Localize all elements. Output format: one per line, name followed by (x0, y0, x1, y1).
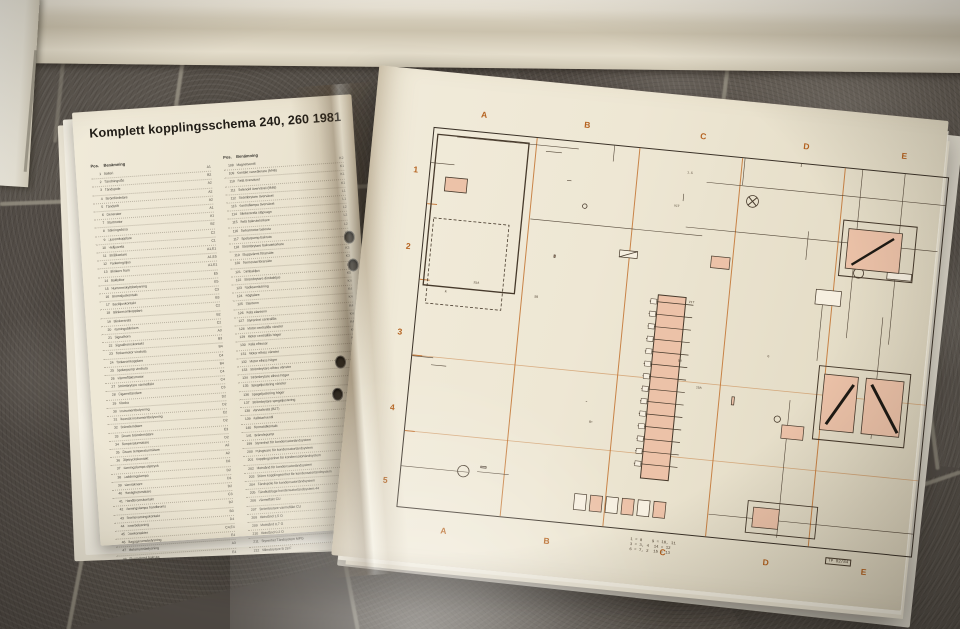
component-box (496, 439, 497, 450)
wire (707, 182, 948, 209)
legend-pos: 136 (239, 391, 249, 399)
legend-ref: K4 (341, 294, 353, 302)
component-box (731, 397, 734, 405)
grid-letter: C (700, 131, 707, 142)
component-box (646, 348, 652, 354)
legend-ref: B4 (211, 344, 223, 352)
wiring-diagram-page: SB5025A2.549aMR16A2.525ASBM49a15A2.5JGND… (331, 65, 948, 610)
legend-pos: 127 (234, 318, 244, 326)
legend-pos: 2 (91, 179, 101, 187)
legend-ref: B3 (221, 507, 233, 515)
legend-ref: B3 (210, 336, 222, 344)
wire (500, 138, 537, 516)
legend-ref: E4 (224, 548, 236, 556)
legend-pos: 26 (104, 376, 114, 384)
wire-label: G (767, 354, 769, 358)
component-box (401, 351, 407, 352)
wire (546, 151, 562, 153)
photo-scene: Komplett kopplingsschema 240, 260 1981 P… (0, 0, 960, 629)
legend-pos: 204 (245, 481, 255, 489)
legend-pos: 6 (94, 212, 104, 220)
legend-pos: 112 (226, 195, 236, 203)
legend-pos: 30 (107, 408, 117, 416)
legend-pos: 21 (102, 335, 112, 343)
legend-pos: 141 (242, 432, 252, 440)
wire (613, 128, 627, 162)
legend-pos: 133 (237, 367, 247, 375)
legend-ref: K4 (341, 302, 353, 310)
component-box (637, 500, 650, 517)
legend-pos: 5 (93, 204, 103, 212)
legend-ref: A1,E5 (205, 254, 217, 262)
legend-ref: A2 (217, 442, 229, 450)
legend-pos: 40 (112, 490, 122, 498)
legend-ref: L2 (335, 212, 347, 220)
legend-pos: 32 (108, 425, 118, 433)
grid-letter: D (803, 141, 810, 152)
legend-pos: 201 (243, 457, 253, 465)
wire (400, 215, 404, 227)
legend-ref: C4 (212, 368, 224, 376)
wire (420, 279, 430, 280)
legend-pos: 119 (230, 252, 240, 260)
legend-pos: 12 (97, 261, 107, 269)
wire (808, 168, 845, 546)
grid-letter: B (584, 120, 591, 131)
component-box (444, 177, 467, 193)
legend-pos: 27 (105, 384, 115, 392)
legend-ref: A1 (199, 164, 211, 172)
component-box (648, 324, 654, 330)
component-box (640, 411, 646, 417)
legend-ref: A3 (224, 540, 236, 548)
legend-pos: 129 (235, 334, 245, 342)
wire-label: R (445, 289, 447, 293)
legend-ref: A1,E1 (205, 262, 217, 270)
component-box (635, 461, 641, 467)
wire-label: 58 (678, 358, 682, 362)
component-box (554, 255, 555, 257)
legend-ref: B2 (199, 172, 211, 180)
legend-pos: 22 (102, 343, 112, 351)
legend-pos: 13 (97, 269, 107, 277)
page-title: Komplett kopplingsschema 240, 260 1981 (89, 110, 345, 141)
legend-pos: 111 (225, 187, 235, 195)
legend-pos: 108 (224, 162, 234, 170)
wire (775, 128, 783, 139)
legend-pos: 210 (248, 530, 258, 538)
component-box (573, 494, 586, 511)
wire-label: VIT (674, 204, 680, 209)
legend-ref: L2 (335, 204, 347, 212)
legend-pos: 47 (116, 547, 126, 555)
wire-label: B+ (589, 420, 593, 424)
wire (530, 219, 702, 236)
legend-pos: 8 (95, 228, 105, 236)
legend-pos: 20 (101, 326, 111, 334)
grid-letter: E (901, 151, 908, 162)
grid-letter: D (762, 557, 769, 568)
legend-pos: 123 (232, 285, 242, 293)
legend-pos: 132 (237, 359, 247, 367)
manual-left-page: Komplett kopplingsschema 240, 260 1981 P… (72, 94, 380, 546)
legend-pos: 122 (231, 277, 241, 285)
wire (397, 138, 454, 164)
legend-ref: L2 (336, 220, 348, 228)
legend-ref: D2 (219, 467, 231, 475)
legend-ref: K4 (342, 310, 354, 318)
component-box (589, 495, 602, 512)
legend-pos: 37 (110, 466, 120, 474)
legend-pos: 18 (100, 310, 110, 318)
grid-letter: A (440, 525, 447, 536)
legend-ref: A2 (218, 450, 230, 458)
legend-ref: E4 (223, 532, 235, 540)
legend-pos: 126 (233, 309, 243, 317)
legend-pos: 23 (103, 351, 113, 359)
legend-ref: K4 (340, 286, 352, 294)
legend-pos: 42 (113, 507, 123, 515)
grid-number: 5 (383, 474, 389, 484)
legend-ref: K3 (337, 245, 349, 253)
binder-hole (343, 230, 355, 244)
legend-pos: 11 (96, 253, 106, 261)
legend-pos: 207 (246, 506, 256, 514)
legend-pos: 109 (224, 170, 234, 178)
component-box (643, 373, 649, 379)
component-box (669, 476, 670, 485)
wire (603, 148, 640, 526)
legend-ref: C3 (220, 491, 232, 499)
legend-pos: 4 (93, 196, 103, 204)
component-box (397, 298, 399, 308)
legend-ref: C3 (213, 385, 225, 393)
legend-ref: E5 (206, 270, 218, 278)
legend-ref: K1 (332, 171, 344, 179)
legend-pos: 206 (246, 498, 256, 506)
wire-label: 15A (696, 385, 702, 390)
legend-pos: 116 (228, 228, 238, 236)
component-box (710, 256, 730, 269)
legend-ref: C2 (215, 409, 227, 417)
legend-ref: C1 (204, 237, 216, 245)
legend-ref: A2 (200, 180, 212, 188)
legend-pos: 110 (225, 179, 235, 187)
component-box (642, 386, 648, 392)
legend-ref: A3 (210, 327, 222, 335)
legend-pos: 211 (249, 539, 259, 547)
component-box (605, 497, 618, 514)
wire-label: 1.5 (687, 170, 693, 175)
pin-code-legend: 1 = 8 9 = 10, 11 3 = 3, 4 14 = 12 6 = 7,… (629, 538, 676, 558)
legend-pos: 28 (106, 392, 116, 400)
legend-ref: B3 (207, 295, 219, 303)
legend-pos: 44 (114, 523, 124, 531)
legend-ref: D2 (221, 499, 233, 507)
legend-ref: K4 (339, 278, 351, 286)
pos-header: Pos. (223, 154, 236, 160)
legend-pos: 124 (232, 293, 242, 301)
legend-pos: 31 (107, 417, 117, 425)
legend-pos: 209 (247, 522, 257, 530)
component-box (651, 299, 657, 305)
legend-ref: C2 (208, 303, 220, 311)
wire (806, 231, 809, 259)
legend-ref: E3 (216, 426, 228, 434)
component-box (423, 134, 529, 293)
legend-ref: D1 (219, 475, 231, 483)
grid-number: 1 (413, 164, 419, 174)
legend-pos: 125 (233, 301, 243, 309)
component-box (621, 498, 634, 515)
wire-label: 25A (473, 280, 479, 285)
legend-pos: 205 (245, 490, 255, 498)
legend-ref: K2 (331, 155, 343, 163)
legend-ref: D4 (222, 516, 234, 524)
legend-pos: 7 (94, 220, 104, 228)
wire (405, 430, 415, 431)
legend-pos: 117 (228, 236, 238, 244)
legend-ref: C4 (211, 352, 223, 360)
wiring-schematic: SB5025A2.549aMR16A2.525ASBM49a15A2.5JGND… (396, 127, 949, 558)
name-header: Benämning (103, 161, 125, 167)
legend-pos: 41 (113, 498, 123, 506)
legend-pos: 17 (100, 302, 110, 310)
legend-pos: 139 (240, 416, 250, 424)
legend-ref: A1 (201, 205, 213, 213)
legend-pos: 9 (95, 236, 105, 244)
legend-ref: K1 (332, 163, 344, 171)
legend-pos: 121 (231, 269, 241, 277)
binder-hole (347, 258, 359, 272)
legend-pos: 10 (96, 245, 106, 253)
name-header: Benämning (236, 153, 258, 159)
legend-pos: 134 (238, 375, 248, 383)
wire (397, 170, 403, 191)
legend-ref: C2 (203, 229, 215, 237)
grid-number: 2 (405, 240, 411, 250)
legend-ref: D2 (220, 483, 232, 491)
legend-pos: 38 (111, 474, 121, 482)
legend-pos: 203 (244, 473, 254, 481)
legend-ref: B2 (202, 221, 214, 229)
legend-pos: 208 (247, 514, 257, 522)
legend-pos: 36 (110, 457, 120, 465)
component-box (636, 448, 642, 454)
legend-pos: 34 (109, 441, 119, 449)
legend-ref: D2 (215, 417, 227, 425)
component-box (425, 218, 509, 311)
legend-pos: 1 (91, 171, 101, 179)
legend-pos: 43 (114, 515, 124, 523)
legend-pos: 45 (115, 531, 125, 539)
motor-symbol (774, 416, 781, 423)
schematic-drawing: SB5025A2.549aMR16A2.525ASBM49a15A2.5JGND… (397, 128, 948, 557)
pos-header: Pos. (90, 163, 103, 169)
legend-pos: 15 (98, 286, 108, 294)
grid-letter: A (481, 109, 488, 120)
legend-pos: 115 (227, 219, 237, 227)
wall-baseboard (0, 0, 960, 73)
legend-pos: 14 (98, 277, 108, 285)
motor-symbol (582, 204, 587, 209)
legend-pos: 135 (238, 383, 248, 391)
legend-pos: 46 (115, 539, 125, 547)
legend-pos: 212 (249, 547, 259, 555)
component-box (781, 425, 804, 441)
legend-pos: 202 (244, 465, 254, 473)
legend-ref: D2 (214, 401, 226, 409)
component-box (649, 311, 655, 317)
grid-number: 3 (397, 326, 403, 336)
component-box (481, 466, 486, 468)
component-box (653, 501, 666, 518)
wire (742, 158, 745, 185)
legend-pos: 137 (239, 400, 249, 408)
wire (427, 204, 437, 205)
component-box (815, 289, 842, 306)
plate-code: TP 82/84 (825, 557, 852, 567)
legend-pos: 130 (236, 342, 246, 350)
wire (683, 194, 684, 201)
legend-pos: 19 (101, 318, 111, 326)
legend-pos: 120 (230, 260, 240, 268)
component-box (644, 361, 650, 367)
legend-pos: 118 (229, 244, 239, 252)
legend-pos: 48 (116, 556, 126, 564)
legend-pos: 16 (99, 294, 109, 302)
legend-pos: 24 (103, 359, 113, 367)
wire-label: VIT (689, 300, 695, 305)
legend-ref: B4 (212, 360, 224, 368)
wire (457, 137, 579, 149)
grid-number: 4 (390, 402, 396, 412)
legend-ref: C2 (209, 319, 221, 327)
legend-pos: 140 (241, 424, 251, 432)
legend-pos: 33 (108, 433, 118, 441)
wire (708, 514, 942, 537)
legend-pos: 199 (242, 440, 252, 448)
legend-ref: A1 (202, 213, 214, 221)
component-box (752, 507, 780, 529)
legend-ref: C4 (213, 376, 225, 384)
wire (431, 365, 446, 366)
wire (742, 128, 748, 149)
grid-letter: E (860, 567, 867, 578)
component-box (534, 394, 536, 410)
wire-label: SB (534, 294, 538, 298)
legend-ref: C3 (207, 286, 219, 294)
legend-ref: L1 (334, 196, 346, 204)
legend-pos: 3 (92, 187, 102, 195)
legend-ref: A1,E1 (204, 246, 216, 254)
legend-ref: D2 (217, 434, 229, 442)
legend-pos: 114 (227, 211, 237, 219)
wire (706, 158, 743, 536)
legend-ref: C4,E4 (223, 524, 235, 532)
legend-ref: D2 (218, 458, 230, 466)
grid-letter: B (543, 536, 550, 547)
component-box (647, 336, 653, 342)
legend-pos: 39 (112, 482, 122, 490)
legend-pos: 25 (104, 367, 114, 375)
legend-ref: B2 (208, 311, 220, 319)
legend-column-1: Pos. Benämning 1BatteriA12TändningslåsB2… (90, 156, 236, 565)
legend-pos: 35 (109, 449, 119, 457)
component-box (887, 272, 912, 281)
legend-pos: 200 (243, 449, 253, 457)
legend-ref: D2 (214, 393, 226, 401)
component-box (641, 398, 647, 404)
legend-pos: 128 (234, 326, 244, 334)
legend-ref: A2 (200, 188, 212, 196)
legend-pos: 29 (106, 400, 116, 408)
component-box (638, 423, 644, 429)
legend-pos: 131 (236, 350, 246, 358)
legend-pos: 138 (240, 408, 250, 416)
legend-ref: L1 (334, 188, 346, 196)
legend-ref: K1 (333, 179, 345, 187)
legend-ref: A2 (201, 196, 213, 204)
component-box (637, 436, 643, 442)
legend-pos: 113 (226, 203, 236, 211)
legend-ref: E5 (206, 278, 218, 286)
